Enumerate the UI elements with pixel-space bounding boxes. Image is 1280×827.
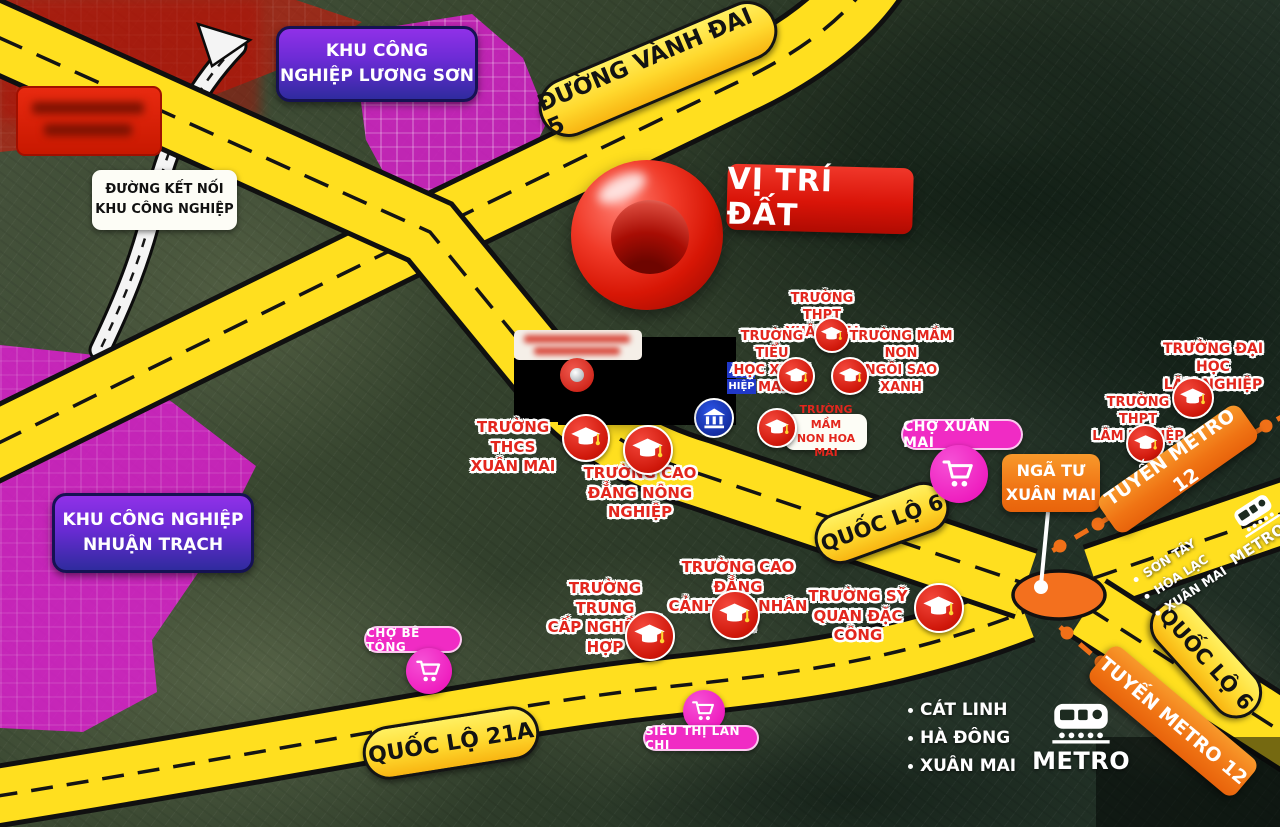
metro-brand: METRO — [1032, 747, 1130, 775]
metro-stop: HÀ ĐÔNG — [908, 728, 1016, 748]
train-icon — [1050, 702, 1112, 744]
location-map: ẢNG HIỆP VỊ TRÍ ĐẤT KHU CÔNG NGHIỆP LƯƠN… — [0, 0, 1280, 827]
graduation-cap-icon — [562, 414, 610, 462]
graduation-cap-icon — [831, 357, 869, 395]
pin-label: VỊ TRÍ ĐẤT — [726, 164, 914, 235]
graduation-cap-icon — [777, 357, 815, 395]
metro-stop: CÁT LINH — [908, 700, 1016, 720]
market-label-cho-be-tong: CHỢ BÊ TÔNG — [364, 626, 462, 653]
graduation-cap-icon — [623, 425, 673, 475]
metro-stop: XUÂN MAI — [908, 756, 1016, 776]
zone-label-nhuan-trach: KHU CÔNG NGHIỆP NHUẬN TRẠCH — [52, 493, 254, 573]
zone-label-luong-son: KHU CÔNG NGHIỆP LƯƠNG SƠN — [276, 26, 478, 102]
school-label-sy-quan-dac-cong: TRƯỜNG SỸ QUAN ĐẶC CÔNG — [796, 587, 920, 646]
school-label-mam-non-hoa-mai: TRƯỜNG MẦM NON HOA MAI — [785, 414, 867, 450]
graduation-cap-icon — [710, 590, 760, 640]
market-label-sieu-thi-lan-chi: SIÊU THỊ LAN CHI — [643, 725, 759, 751]
cart-icon — [406, 648, 452, 694]
graduation-cap-icon — [914, 583, 964, 633]
metro-station-bottom: CÁT LINH HÀ ĐÔNG XUÂN MAI METRO — [908, 700, 1128, 776]
road-label-ket-noi: ĐƯỜNG KẾT NỐI KHU CÔNG NGHIỆP — [92, 170, 237, 230]
location-pin — [556, 160, 736, 430]
red-sign-blurred — [16, 86, 162, 156]
school-label-thcs-xuan-mai: TRƯỜNG THCS XUÂN MAI — [460, 418, 566, 477]
junction-box-nga-tu-xuan-mai: NGÃ TƯ XUÂN MAI — [1002, 454, 1100, 512]
roundabout — [1013, 571, 1105, 619]
graduation-cap-icon — [757, 408, 797, 448]
cart-icon — [930, 445, 988, 503]
school-label-dai-hoc-lam-nghiep: TRƯỜNG ĐẠI HỌC LÂM NGHIỆP — [1155, 340, 1271, 395]
